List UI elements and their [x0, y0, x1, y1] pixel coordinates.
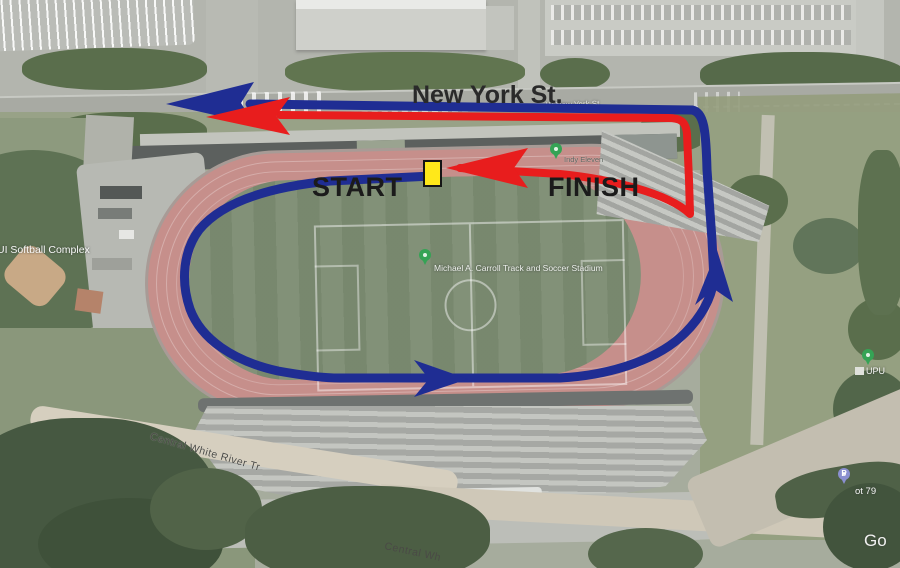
race-course-map: PUI Softball Complex W New York St Micha… [0, 0, 900, 568]
start-label: START [312, 172, 403, 203]
finish-label: FINISH [548, 172, 640, 203]
new-york-street-label: New York St. [412, 81, 563, 110]
start-finish-marker [423, 160, 442, 187]
blue-outbound-route [184, 104, 714, 378]
